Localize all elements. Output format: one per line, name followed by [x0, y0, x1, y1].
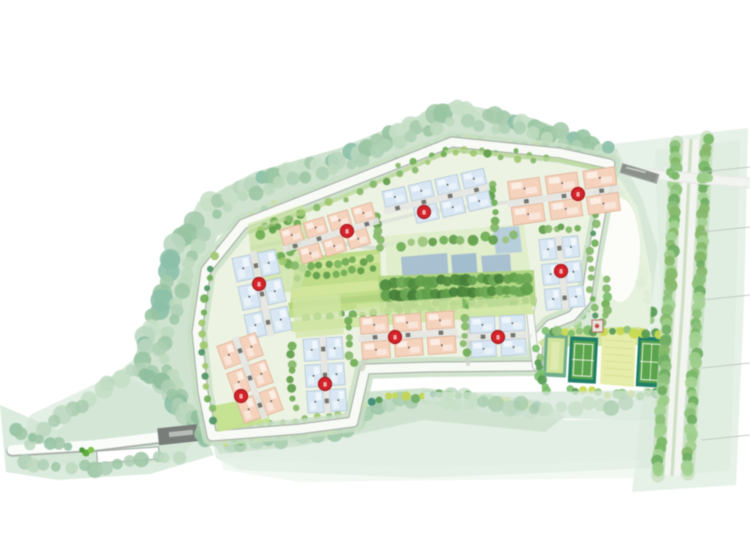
svg-text:8: 8	[496, 335, 500, 342]
svg-text:8: 8	[576, 192, 580, 199]
svg-text:8: 8	[422, 210, 426, 217]
svg-text:8: 8	[345, 229, 349, 236]
svg-text:8: 8	[559, 269, 563, 276]
svg-text:8: 8	[257, 282, 261, 289]
svg-text:8: 8	[239, 394, 243, 401]
svg-text:8: 8	[323, 382, 327, 389]
svg-text:8: 8	[393, 335, 397, 342]
